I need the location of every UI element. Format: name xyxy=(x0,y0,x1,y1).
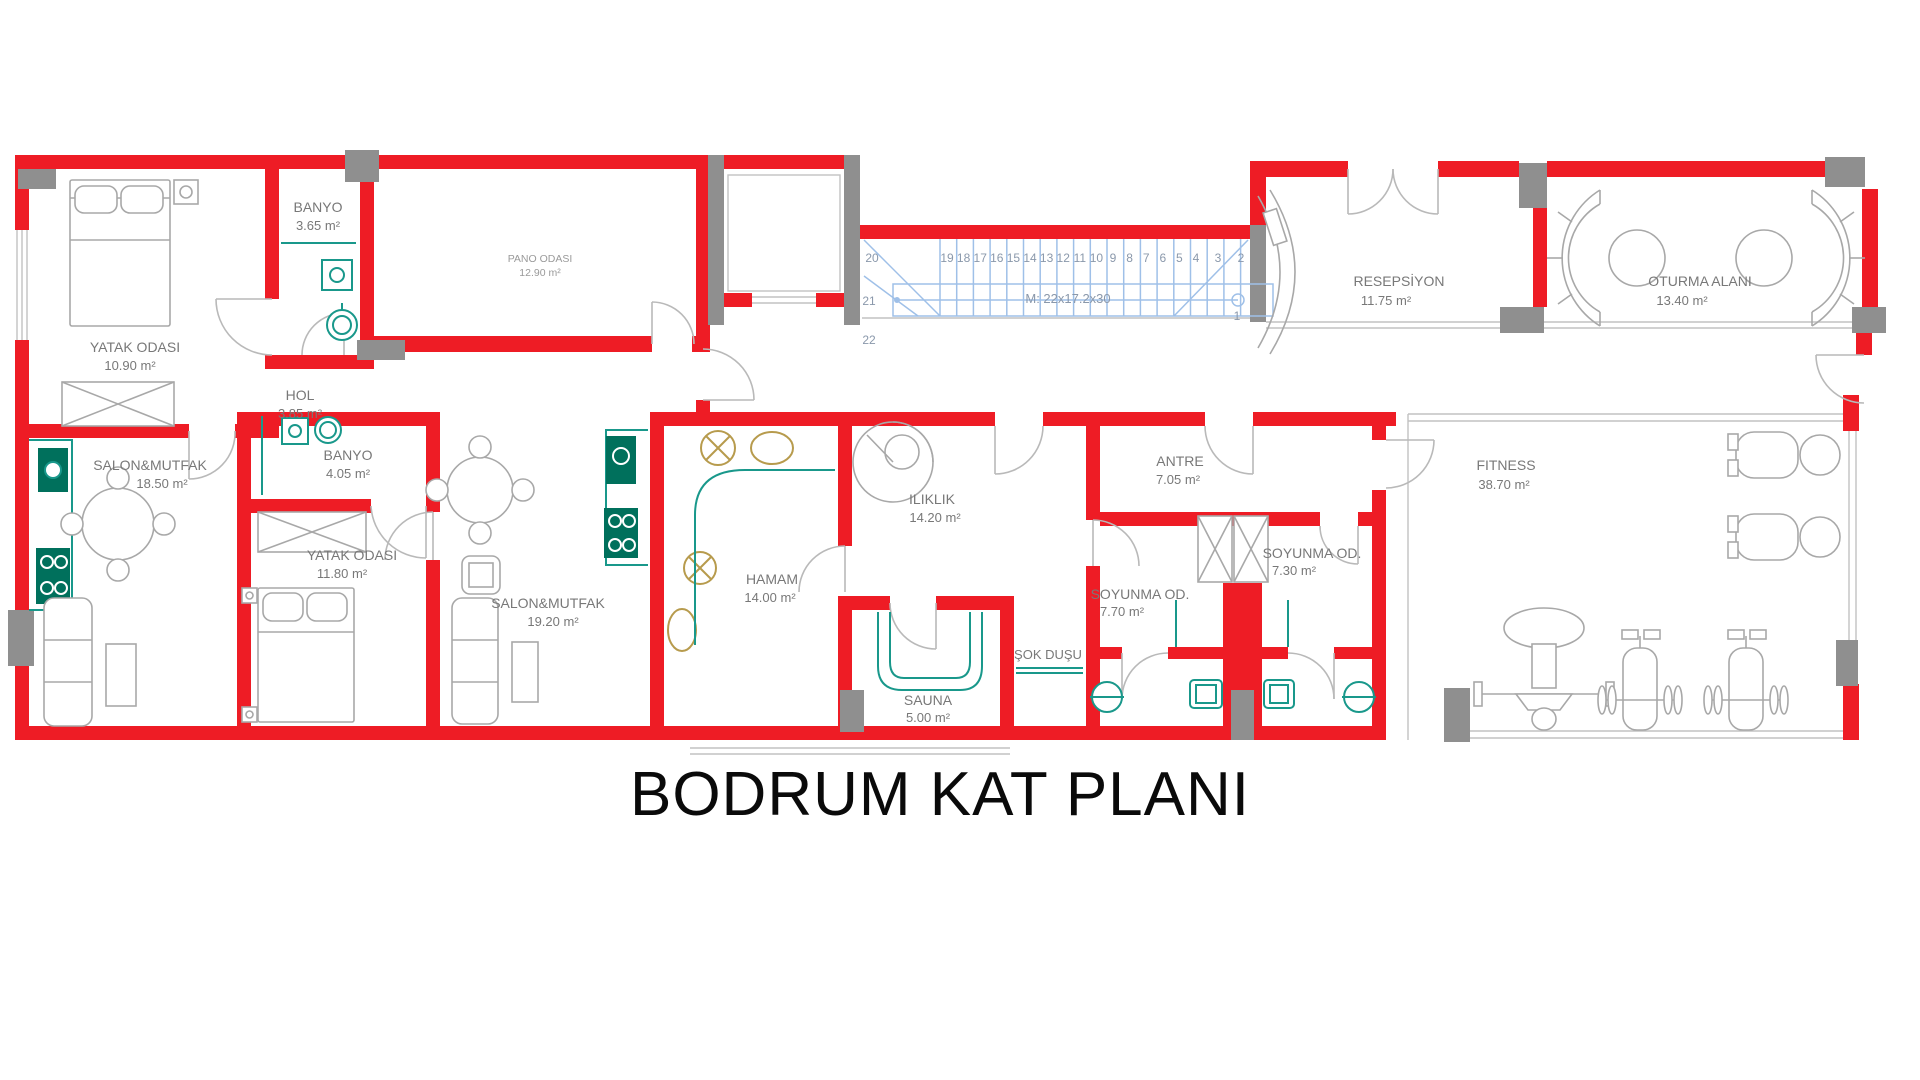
room-area-salon1: 18.50 m² xyxy=(136,476,188,491)
terrace-lines xyxy=(690,748,1010,754)
stair-step-number: 4 xyxy=(1193,251,1200,265)
weight-bench2-icon xyxy=(1704,630,1788,730)
room-label-yatak1: YATAK ODASI xyxy=(90,339,180,355)
stair-step-number: 15 xyxy=(1007,251,1021,265)
stair-step-number: 6 xyxy=(1159,251,1166,265)
exercise-bike2-icon xyxy=(1728,514,1840,560)
room-label-banyo2: BANYO xyxy=(323,447,372,463)
room-area-salon2: 19.20 m² xyxy=(527,614,579,629)
sauna-bench-icon xyxy=(878,612,982,690)
room-label-iliklik: ILIKLIK xyxy=(909,491,956,507)
room-area-yatak2: 11.80 m² xyxy=(317,566,368,581)
corridor-lines xyxy=(1266,322,1862,328)
door-yatak1 xyxy=(216,299,272,355)
stair-step-number: 7 xyxy=(1143,251,1150,265)
room-area-oturma: 13.40 m² xyxy=(1656,293,1708,308)
stair-step-number: 5 xyxy=(1176,251,1183,265)
stair-step-number: 16 xyxy=(990,251,1004,265)
room-label-soyunma2: SOYUNMA OD. xyxy=(1263,545,1362,561)
room-area-hol: 3.85 m² xyxy=(278,406,323,421)
exercise-bike-icon xyxy=(1728,432,1840,478)
armchair-icon xyxy=(462,556,500,594)
door-hamam xyxy=(799,546,845,592)
floor-plan-page: 12345678910111213141516171819202122 M: 2… xyxy=(0,0,1920,1080)
door-reception-double xyxy=(1348,169,1438,214)
room-area-soyunma1: 7.70 m² xyxy=(1100,604,1145,619)
room-label-hol: HOL xyxy=(286,387,315,403)
room-label-sokdusu: ŞOK DUŞU xyxy=(1014,647,1082,662)
stair-step-number: 20 xyxy=(865,251,879,265)
window-left xyxy=(17,230,27,340)
stair-step-number: 2 xyxy=(1238,251,1245,265)
page-title: BODRUM KAT PLANI xyxy=(630,760,1250,829)
weight-bench-icon xyxy=(1598,630,1682,730)
room-label-salon2: SALON&MUTFAK xyxy=(491,595,605,611)
door-pano xyxy=(652,302,694,344)
room-area-hamam: 14.00 m² xyxy=(744,590,796,605)
room-label-fitness: FITNESS xyxy=(1476,457,1535,473)
stair-step-number: 21 xyxy=(862,294,876,308)
room-label-hamam: HAMAM xyxy=(746,571,798,587)
room-label-pano: PANO ODASI xyxy=(508,253,573,265)
sofa-icon xyxy=(44,598,136,726)
room-area-banyo1: 3.65 m² xyxy=(296,218,341,233)
stair-step-number: 3 xyxy=(1215,251,1222,265)
room-area-yatak1: 10.90 m² xyxy=(104,358,156,373)
room-area-banyo2: 4.05 m² xyxy=(326,466,371,481)
stair-step-number: 12 xyxy=(1057,251,1071,265)
room-area-iliklik: 14.20 m² xyxy=(909,510,961,525)
stair-step-number: 13 xyxy=(1040,251,1054,265)
door-antre-fitness xyxy=(1386,440,1434,488)
multi-gym-icon xyxy=(1474,608,1614,730)
room-label-banyo1: BANYO xyxy=(293,199,342,215)
room-area-sauna: 5.00 m² xyxy=(906,710,951,725)
stair-step-number: 8 xyxy=(1126,251,1133,265)
room-label-soyunma1: SOYUNMA OD. xyxy=(1091,586,1190,602)
shock-shower-icon xyxy=(1016,668,1083,673)
door-stall-1 xyxy=(1122,653,1168,699)
dining-table2-icon xyxy=(426,436,534,544)
bed-icon xyxy=(70,180,170,326)
room-area-pano: 12.90 m² xyxy=(519,267,561,279)
door-antre xyxy=(1205,426,1253,474)
washing-machine-icon xyxy=(281,243,357,340)
wardrobe-icon xyxy=(62,382,174,426)
stair-step-number: 9 xyxy=(1110,251,1117,265)
kitchen2-counter-icon xyxy=(604,430,648,565)
stair-step-number: 17 xyxy=(974,251,988,265)
room-label-oturma: OTURMA ALANI xyxy=(1648,273,1751,289)
stair-step-number: 1 xyxy=(1234,309,1241,323)
room-label-sauna: SAUNA xyxy=(904,692,953,708)
door-sauna xyxy=(890,603,936,649)
room-area-antre: 7.05 m² xyxy=(1156,472,1201,487)
room-label-antre: ANTRE xyxy=(1156,453,1203,469)
door-apartment-entry xyxy=(703,349,754,400)
nightstand-icon xyxy=(174,180,198,204)
elevator xyxy=(728,175,840,303)
doors xyxy=(189,169,1864,699)
iliklik-stone-icon xyxy=(853,422,933,502)
stair-step-number: 14 xyxy=(1023,251,1037,265)
floor-plan: 12345678910111213141516171819202122 M: 2… xyxy=(0,0,1920,1080)
room-area-resepsiyon: 11.75 m² xyxy=(1361,293,1412,308)
room-label-salon1: SALON&MUTFAK xyxy=(93,457,207,473)
door-soyunma1 xyxy=(1093,520,1139,566)
hamam-basins-icon xyxy=(668,431,835,651)
room-label-resepsiyon: RESEPSİYON xyxy=(1353,272,1444,289)
stair-step-number: 11 xyxy=(1074,251,1087,265)
room-area-soyunma2: 7.30 m² xyxy=(1272,563,1317,578)
stair-step-number: 19 xyxy=(940,251,954,265)
wardrobe2-icon xyxy=(258,512,366,552)
bed2-icon xyxy=(242,588,354,722)
staircase: 12345678910111213141516171819202122 M: 2… xyxy=(862,239,1273,347)
room-label-yatak2: YATAK ODASI xyxy=(307,547,397,563)
sofa2-icon xyxy=(452,598,538,724)
stair-step-number: 10 xyxy=(1090,251,1104,265)
stair-step-number: 18 xyxy=(957,251,971,265)
stair-annotation: M: 22x17.2x30 xyxy=(1025,291,1110,306)
door-iliklik xyxy=(995,426,1043,474)
stair-step-number: 22 xyxy=(862,333,876,347)
room-area-fitness: 38.70 m² xyxy=(1478,477,1530,492)
